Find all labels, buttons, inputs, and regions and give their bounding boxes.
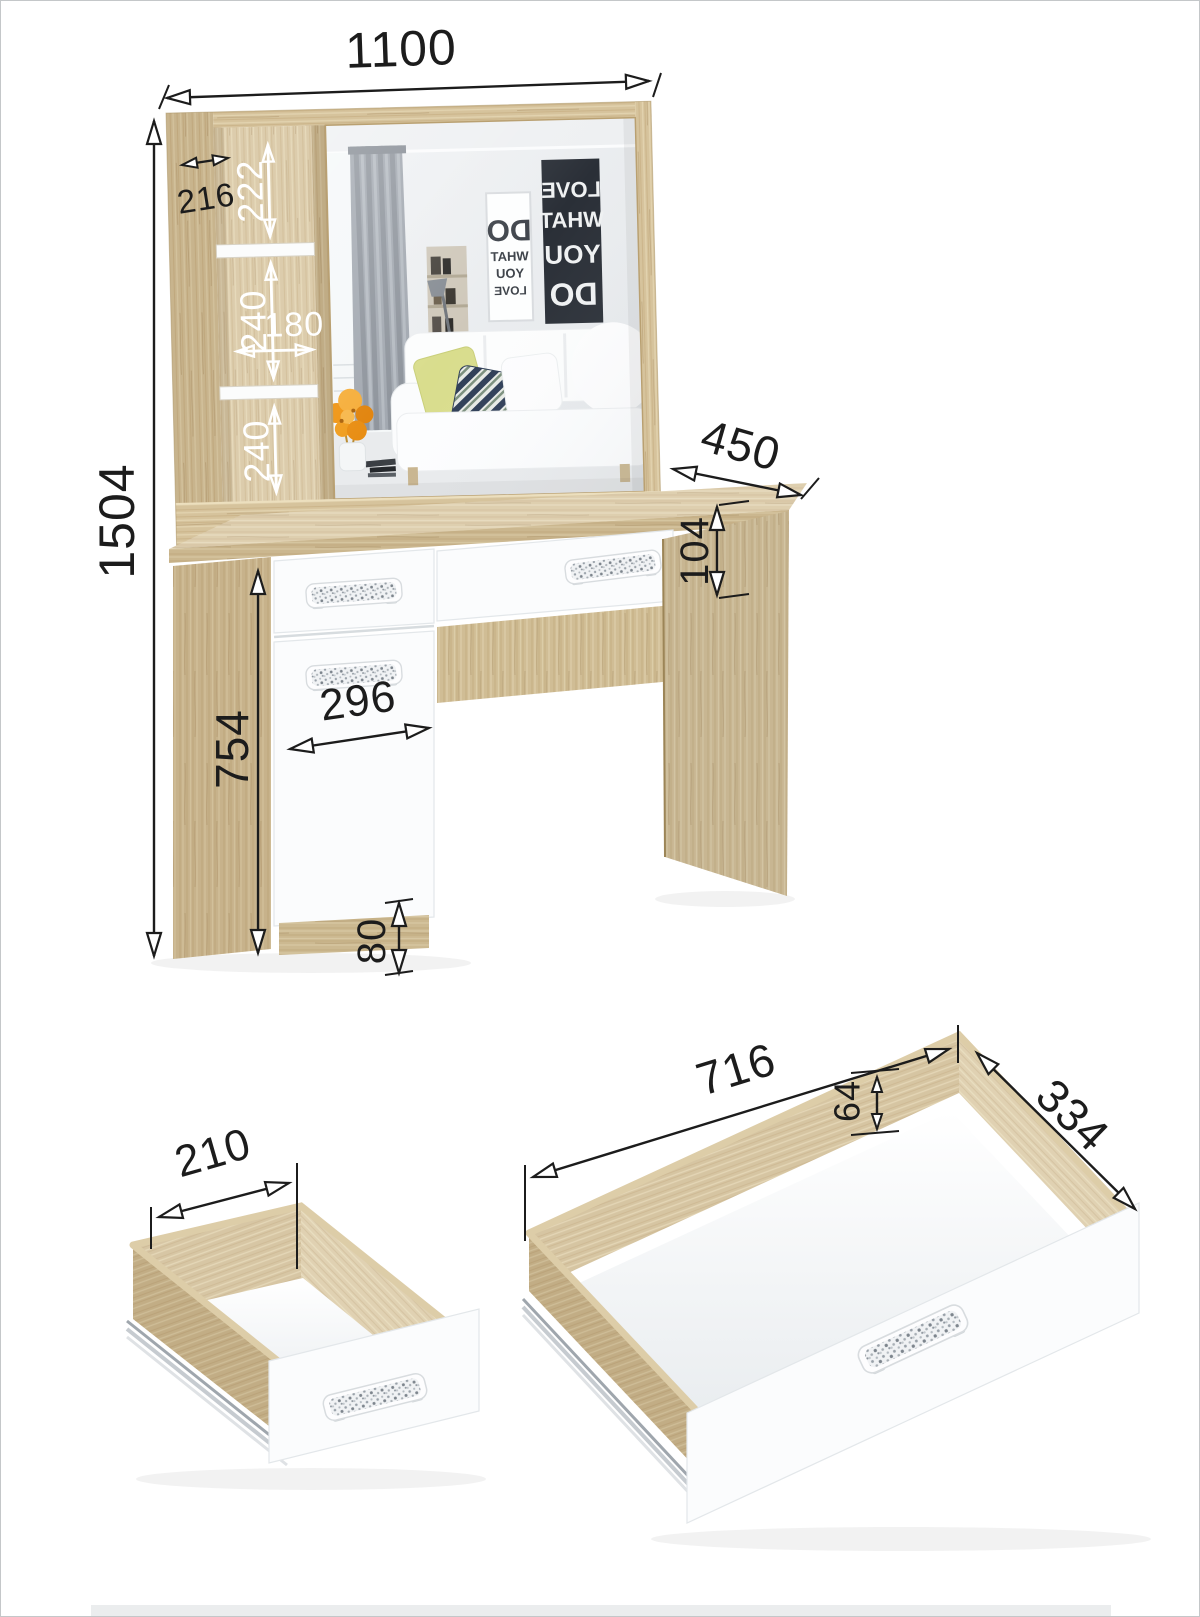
dim-large-drawer-side-label: 64 [827, 1080, 868, 1122]
mirror-reflection-scene: DO WHAT YOU LOVE LOVE WHAT YOU DO [319, 117, 658, 499]
furniture-dimension-diagram: DO WHAT YOU LOVE LOVE WHAT YOU DO [0, 0, 1200, 1617]
bottom-edge-strip [91, 1605, 1111, 1616]
small-drawer-render: 210 [127, 1119, 486, 1490]
shelf-1 [216, 243, 314, 258]
shelf-2 [220, 384, 318, 399]
dim-desktop-depth-label: 450 [696, 409, 787, 481]
dim-pedestal-height-label: 754 [206, 709, 258, 789]
mirror-superstructure: DO WHAT YOU LOVE LOVE WHAT YOU DO [166, 101, 661, 546]
diagram-svg: DO WHAT YOU LOVE LOVE WHAT YOU DO [1, 1, 1200, 1617]
dim-plinth-height-label: 80 [350, 918, 394, 965]
dim-overall-width-1100: 1100 [159, 19, 661, 109]
dim-cubby-bottom-label: 240 [235, 419, 278, 483]
dim-cubby-top-label: 222 [229, 159, 272, 223]
dim-overall-height-label: 1504 [89, 463, 145, 578]
large-drawer-render: 716 334 64 [523, 1025, 1151, 1551]
dim-overall-width-label: 1100 [344, 19, 457, 79]
dim-overall-height-1504: 1504 [89, 121, 154, 956]
dim-small-drawer-width-label: 210 [170, 1119, 257, 1187]
dim-large-drawer-width-label: 716 [690, 1032, 781, 1105]
dim-drawer-front-height-label: 104 [673, 516, 717, 586]
dim-cubby-width-label: 180 [264, 305, 325, 344]
